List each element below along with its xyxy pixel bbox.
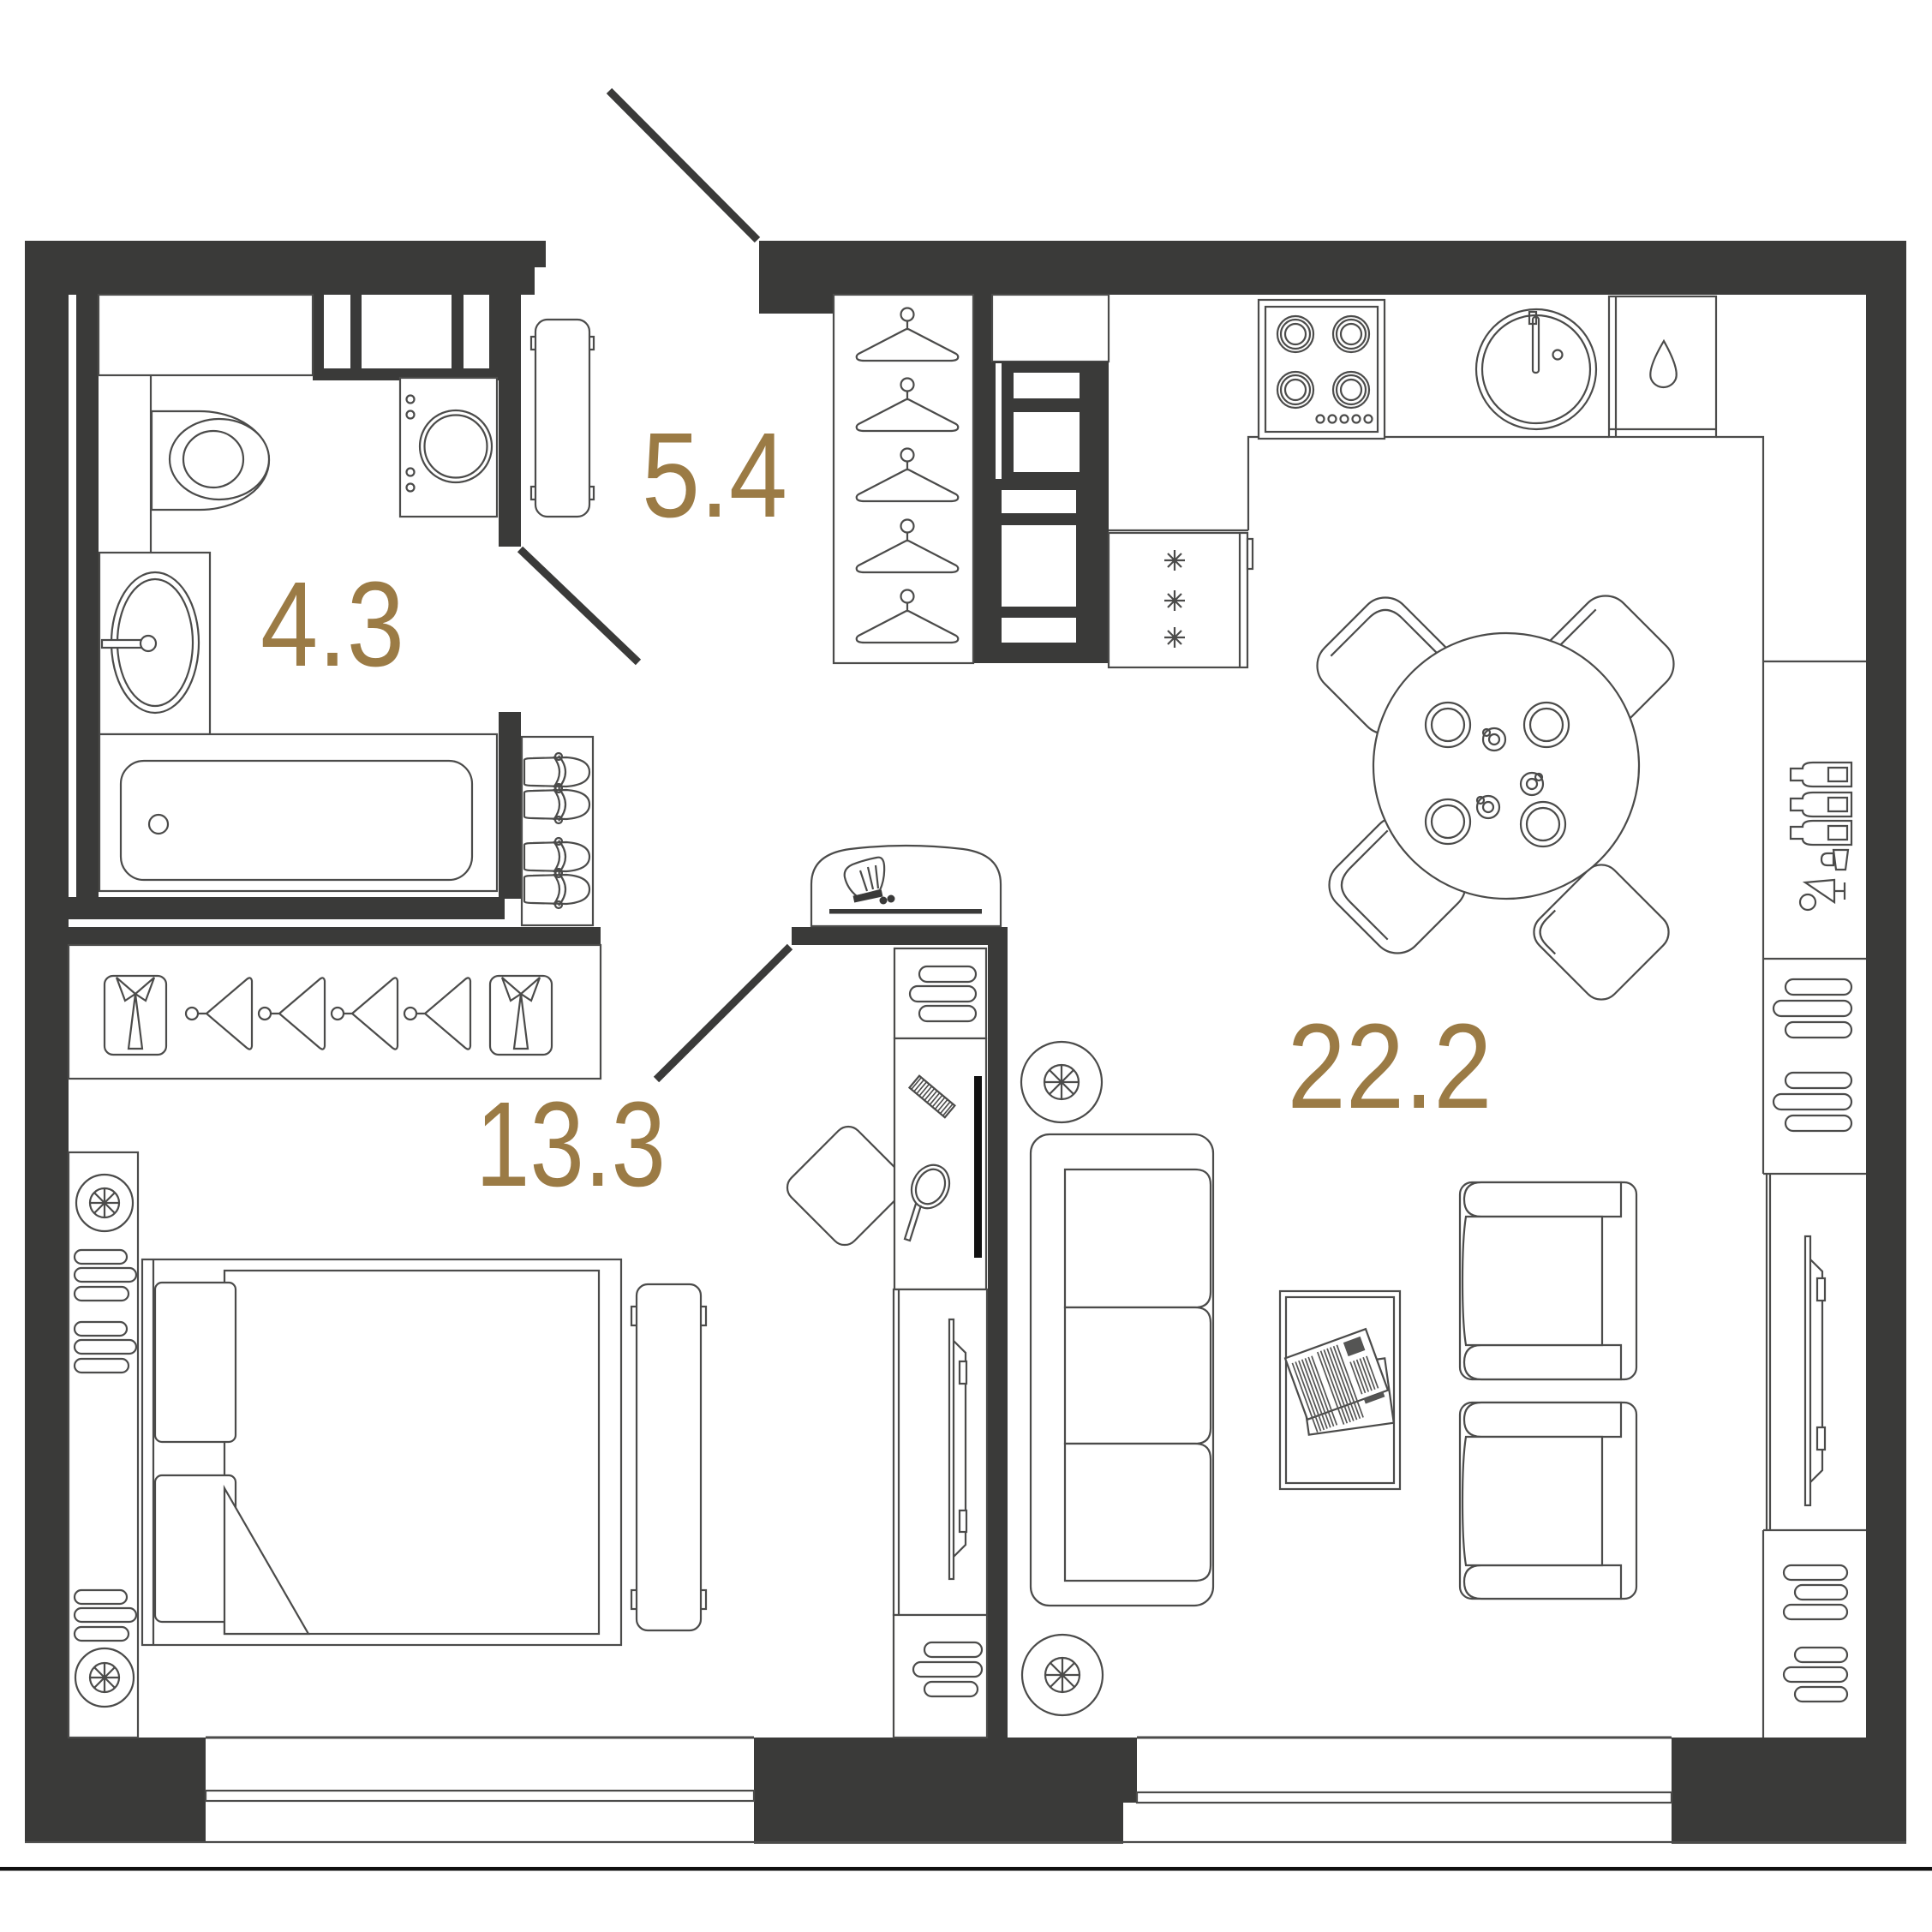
svg-text:5.4: 5.4 <box>642 407 787 542</box>
svg-text:13.3: 13.3 <box>476 1076 666 1211</box>
svg-text:22.2: 22.2 <box>1288 998 1492 1133</box>
svg-text:4.3: 4.3 <box>260 556 404 691</box>
